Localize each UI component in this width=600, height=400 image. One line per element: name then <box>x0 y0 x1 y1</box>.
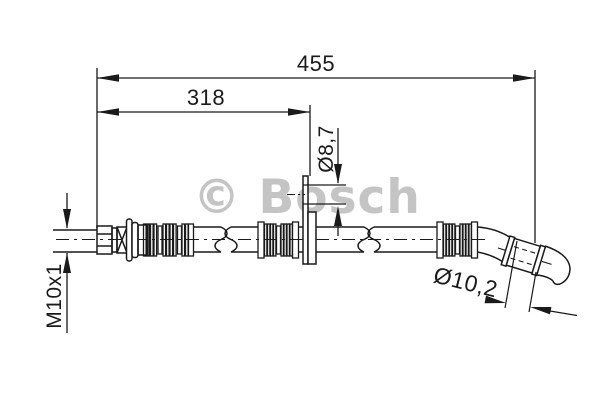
arrowhead <box>530 307 551 314</box>
arrowhead <box>97 74 119 82</box>
dimension-318 <box>97 105 310 176</box>
technical-drawing-canvas: © Bosch <box>0 0 600 400</box>
flange-disk <box>127 219 133 261</box>
left-pipe-stub <box>53 230 97 252</box>
arrowhead <box>513 74 535 82</box>
hose-assembly <box>53 176 570 284</box>
arrowhead <box>334 206 342 226</box>
bracket-hole-edges <box>303 185 346 204</box>
extension-line <box>529 272 536 312</box>
leader-line <box>550 311 577 316</box>
arrowhead <box>288 108 310 116</box>
dimension-label-thread-size: M10x1 <box>43 256 65 336</box>
dimension-label-bracket-hole-diameter: Ø8,7 <box>315 123 337 175</box>
dimension-label-length-to-bracket: 318 <box>166 85 246 111</box>
arrowhead <box>63 209 71 229</box>
spring-guard-middle <box>258 222 299 258</box>
spring-guard-left <box>144 224 194 256</box>
flange-disk <box>132 223 138 258</box>
end-ferrule <box>494 234 556 279</box>
arrowhead <box>97 108 119 116</box>
dimension-label-overall-length: 455 <box>276 51 356 77</box>
